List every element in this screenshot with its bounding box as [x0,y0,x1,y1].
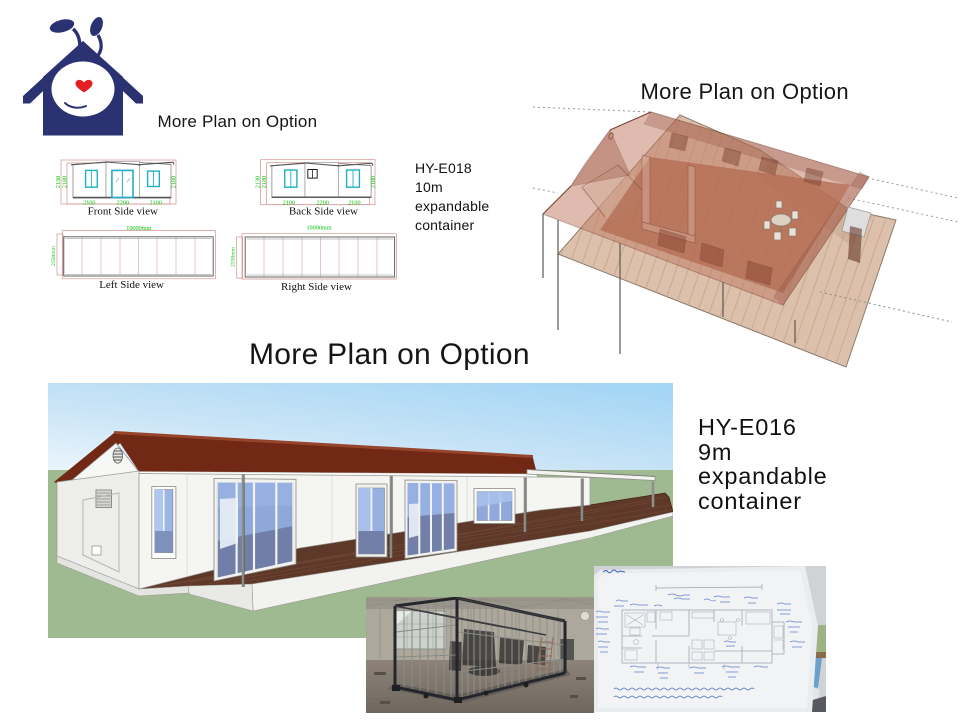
svg-text:2180: 2180 [171,176,178,188]
svg-text:Right Side view: Right Side view [281,281,352,293]
svg-text:2550mm: 2550mm [231,246,237,267]
svg-text:2180: 2180 [370,176,377,188]
svg-text:Back Side view: Back Side view [289,206,358,218]
svg-text:Front Side view: Front Side view [88,206,158,218]
svg-text:10000mm: 10000mm [126,225,151,232]
svg-text:10000mm: 10000mm [306,225,331,232]
svg-text:2550mm: 2550mm [51,245,57,266]
svg-text:2180: 2180 [261,176,268,188]
svg-text:2180: 2180 [62,176,69,188]
svg-text:Left Side view: Left Side view [99,279,164,291]
